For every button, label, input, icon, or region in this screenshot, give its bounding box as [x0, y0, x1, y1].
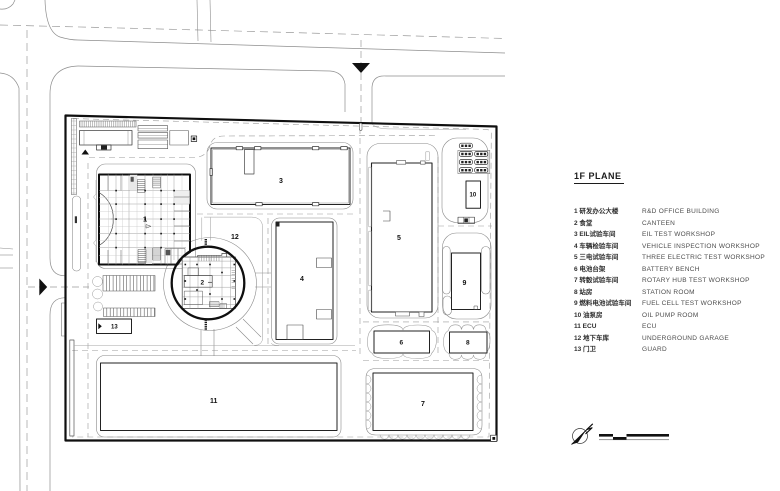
- svg-text:5: 5: [397, 235, 401, 242]
- svg-text:13: 13: [111, 325, 118, 331]
- svg-text:4: 4: [300, 276, 304, 283]
- svg-text:12: 12: [231, 234, 239, 241]
- svg-text:6: 6: [400, 340, 404, 347]
- svg-text:2: 2: [201, 280, 205, 287]
- svg-text:11: 11: [210, 398, 218, 405]
- svg-text:10: 10: [470, 193, 477, 199]
- svg-text:8: 8: [466, 340, 470, 347]
- svg-text:1: 1: [143, 215, 147, 224]
- svg-text:3: 3: [279, 178, 283, 185]
- svg-text:7: 7: [421, 401, 425, 408]
- svg-text:9: 9: [463, 280, 467, 287]
